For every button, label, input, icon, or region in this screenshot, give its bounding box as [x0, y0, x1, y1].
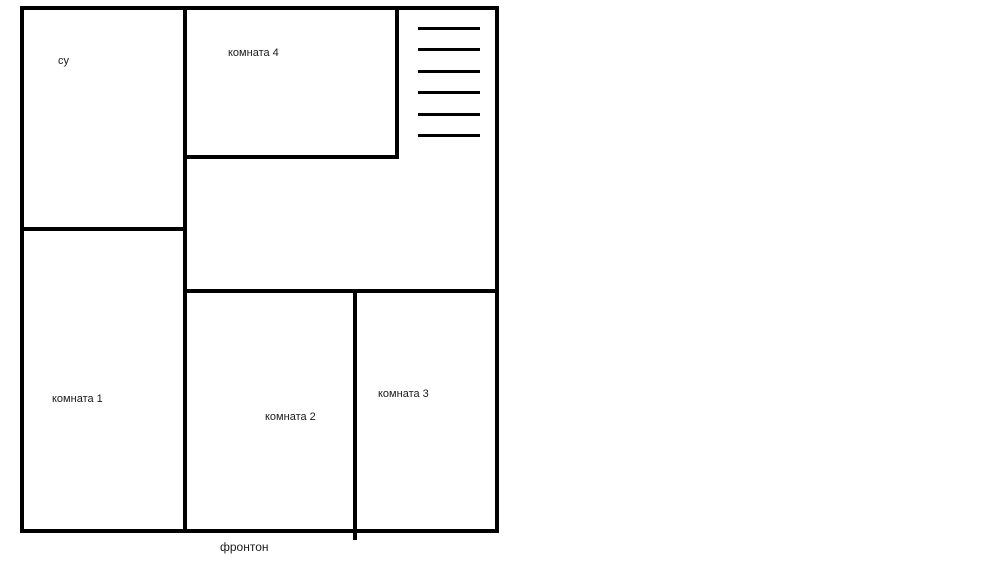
- stair-line: [418, 134, 480, 137]
- room-label-room1: комната 1: [52, 393, 103, 405]
- room-label-room4: комната 4: [228, 47, 279, 59]
- wall-room4-bottom: [183, 155, 399, 159]
- wall-room4-right: [395, 6, 399, 159]
- wall-su-bottom: [20, 227, 187, 231]
- room-label-room2: комната 2: [265, 411, 316, 423]
- room-label-room3: комната 3: [378, 388, 429, 400]
- stairs-hatch: [418, 27, 480, 137]
- floor-plan-canvas: су комната 4 комната 1 комната 2 комната…: [0, 0, 1000, 562]
- wall-rooms23-top: [183, 289, 499, 293]
- stair-line: [418, 113, 480, 116]
- stair-line: [418, 91, 480, 94]
- stair-line: [418, 27, 480, 30]
- wall-room2-room3-divider: [353, 289, 357, 540]
- stair-line: [418, 48, 480, 51]
- wall-vertical-main: [183, 6, 187, 533]
- caption-fronton: фронтон: [220, 541, 269, 554]
- room-label-su: су: [58, 55, 69, 67]
- stair-line: [418, 70, 480, 73]
